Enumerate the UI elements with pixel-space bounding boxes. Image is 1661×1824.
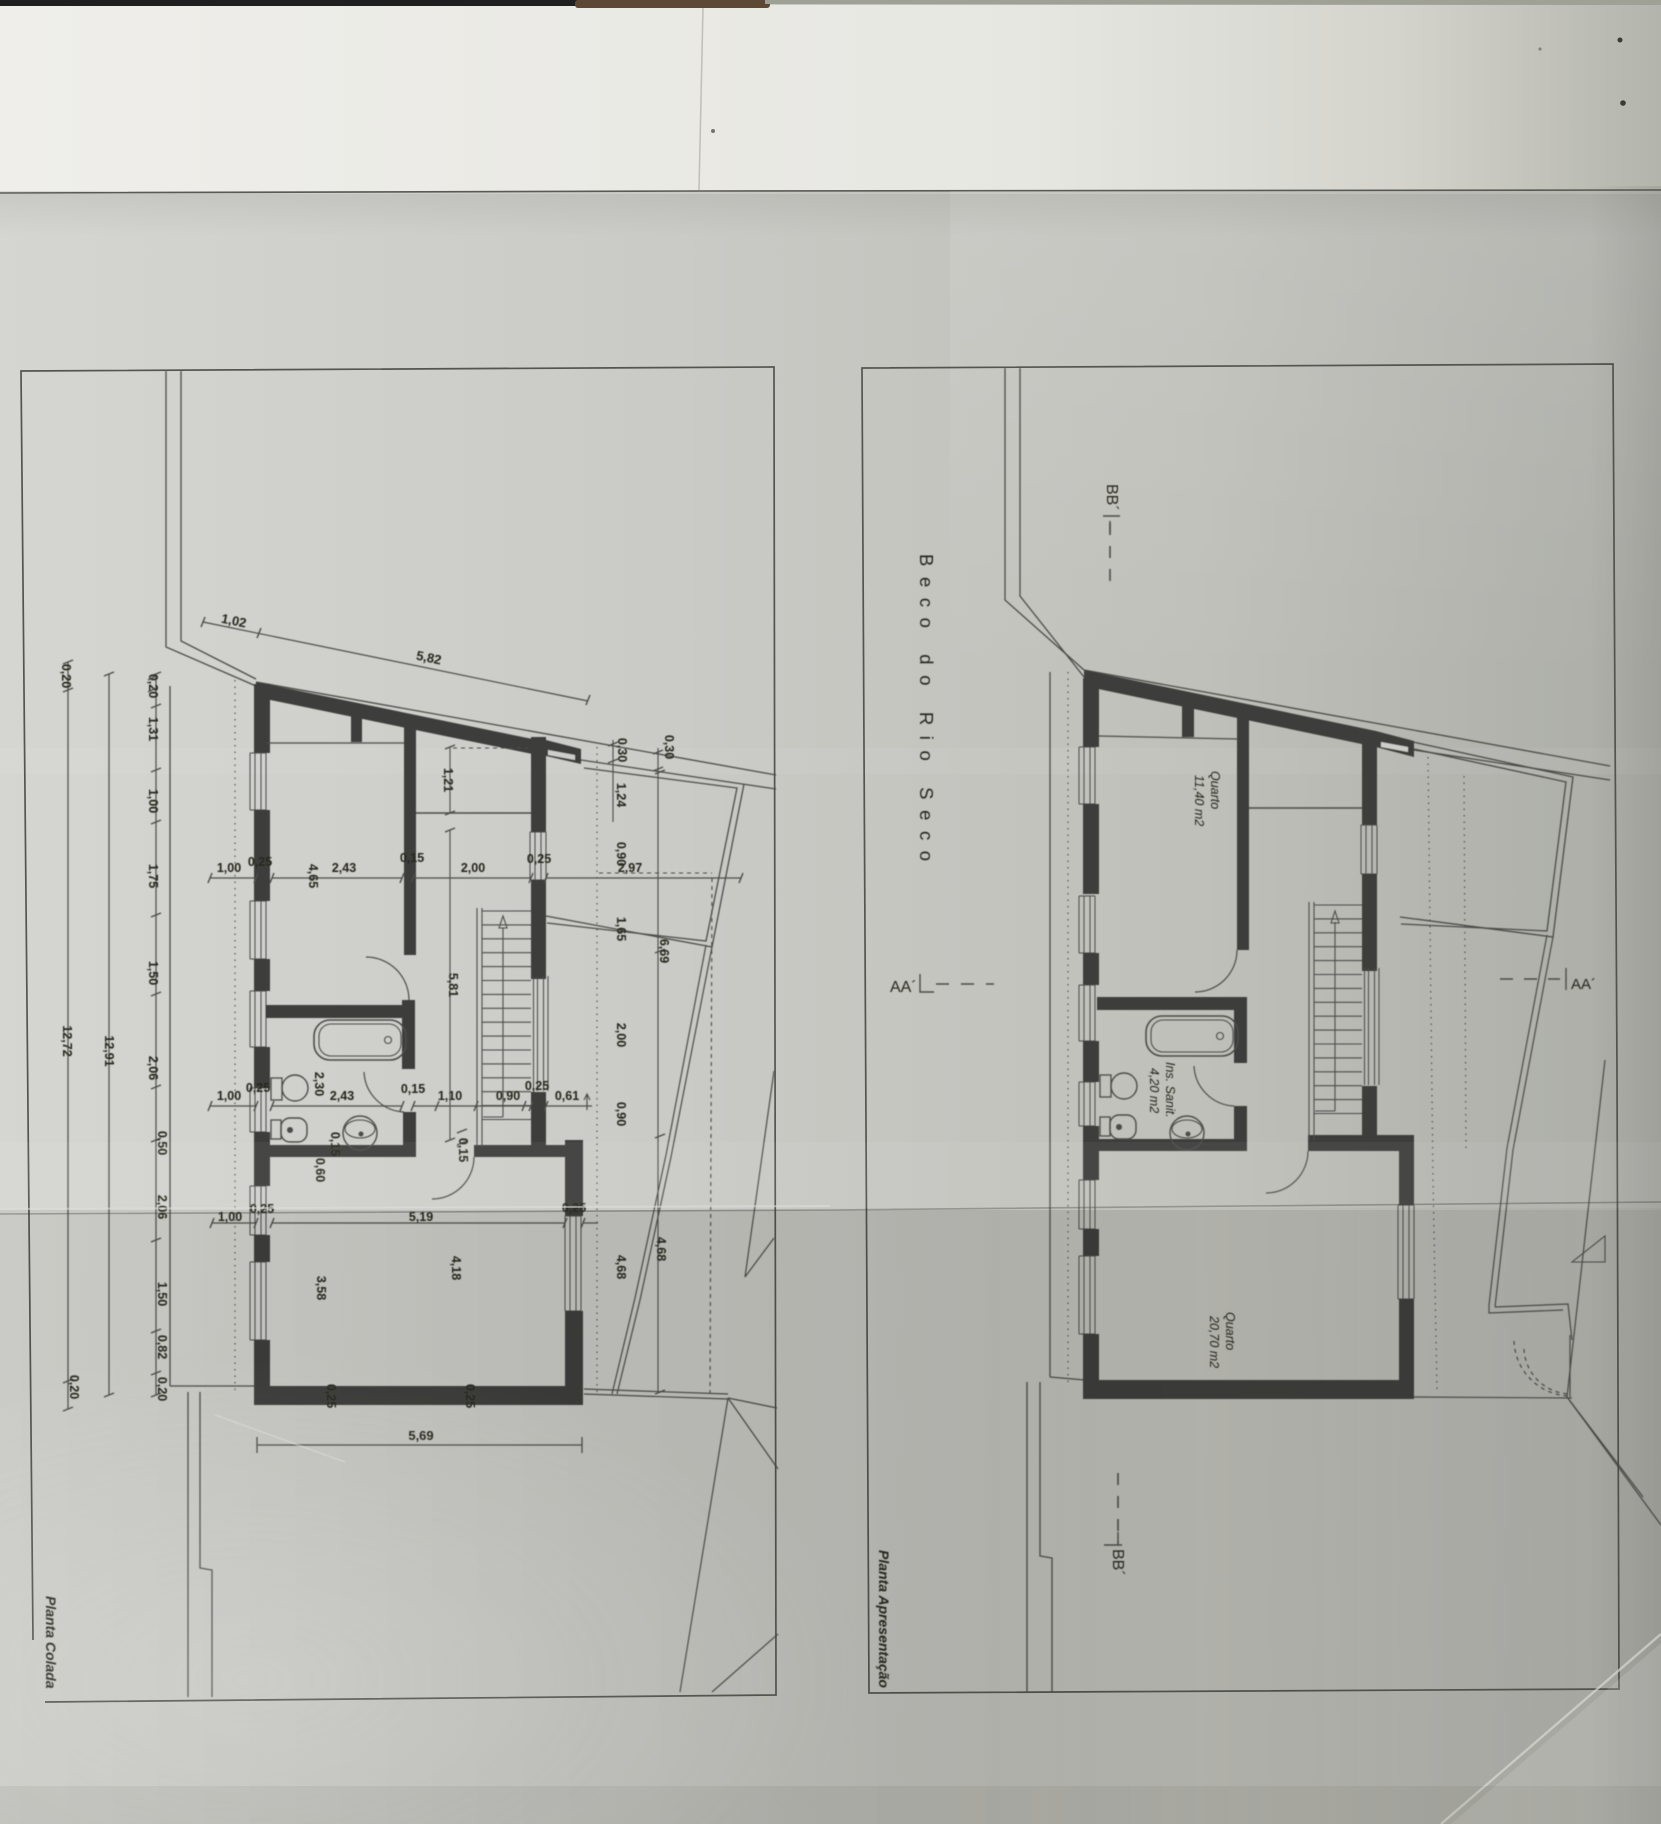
svg-text:0,90: 0,90	[496, 1089, 520, 1103]
svg-text:11,40 m2: 11,40 m2	[1192, 775, 1206, 826]
svg-text:0,15: 0,15	[401, 1082, 425, 1096]
svg-text:5,81: 5,81	[446, 973, 460, 997]
svg-text:0,30: 0,30	[615, 738, 629, 762]
svg-text:1,24: 1,24	[614, 783, 628, 807]
svg-text:1,31: 1,31	[146, 717, 160, 741]
svg-text:2,06: 2,06	[146, 1056, 160, 1080]
svg-text:0,90: 0,90	[614, 1102, 628, 1126]
svg-text:0,15: 0,15	[400, 851, 424, 865]
svg-text:0,30: 0,30	[662, 735, 676, 759]
svg-text:0,61: 0,61	[555, 1089, 579, 1103]
svg-text:2,43: 2,43	[330, 1089, 354, 1103]
svg-text:Ins. Sanit.: Ins. Sanit.	[1163, 1062, 1177, 1118]
svg-text:2,00: 2,00	[461, 861, 485, 875]
svg-text:1,75: 1,75	[146, 864, 160, 888]
svg-text:1,00: 1,00	[217, 1089, 241, 1103]
svg-text:1,00: 1,00	[146, 789, 160, 813]
svg-text:0,25: 0,25	[527, 852, 551, 866]
svg-text:0,25: 0,25	[246, 1081, 270, 1095]
svg-text:AA´: AA´	[890, 979, 917, 996]
svg-text:1,00: 1,00	[217, 861, 241, 875]
svg-text:1,21: 1,21	[441, 768, 455, 792]
svg-text:2,00: 2,00	[614, 1023, 628, 1047]
svg-text:0,90: 0,90	[614, 842, 628, 866]
svg-text:2,43: 2,43	[332, 861, 356, 875]
svg-text:2,30: 2,30	[312, 1072, 326, 1096]
svg-text:12,72: 12,72	[60, 1025, 74, 1056]
svg-text:Beco do Rio Seco: Beco do Rio Seco	[916, 554, 937, 872]
svg-text:4,65: 4,65	[306, 864, 320, 888]
svg-text:1,50: 1,50	[146, 961, 160, 985]
svg-text:BB´: BB´	[1103, 484, 1120, 511]
svg-text:12,91: 12,91	[102, 1035, 116, 1066]
svg-text:0,25: 0,25	[525, 1079, 549, 1093]
svg-text:1,65: 1,65	[614, 917, 628, 941]
svg-text:Quarto: Quarto	[1208, 771, 1222, 809]
svg-text:4,20 m2: 4,20 m2	[1147, 1068, 1161, 1113]
svg-text:6,69: 6,69	[657, 939, 671, 963]
svg-text:0,20: 0,20	[59, 664, 73, 688]
svg-text:0,25: 0,25	[248, 855, 272, 869]
